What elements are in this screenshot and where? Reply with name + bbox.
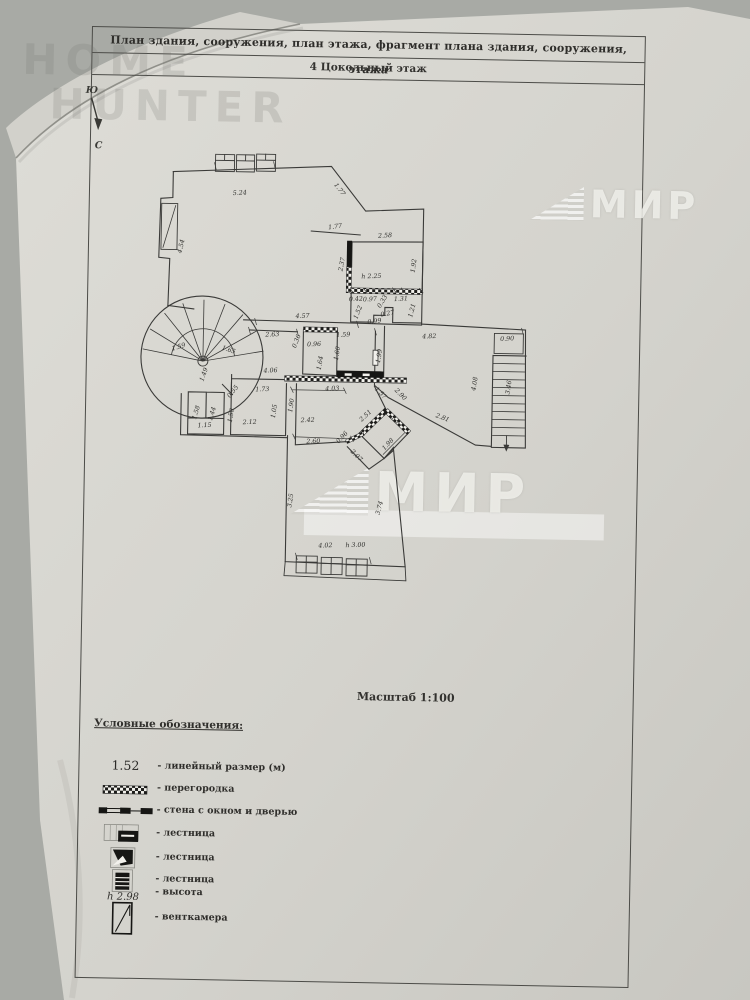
dimension-label: 1.05 <box>270 404 279 419</box>
legend-label: - стена с окном и дверью <box>157 804 298 818</box>
dimension-labels: 5.241.771.774.542.581.92h 2.252.370.420.… <box>167 179 517 553</box>
dimension-label: 2.42 <box>300 417 315 425</box>
dimension-label: 1.99 <box>375 349 384 364</box>
dimension-label: 0.42 <box>349 296 363 304</box>
partition-symbol-icon <box>102 784 148 795</box>
compass-north-label: С <box>95 140 119 151</box>
dimension-label: 1.49 <box>199 367 210 383</box>
window-symbols-bottom <box>296 556 367 576</box>
dimension-label: 3.46 <box>504 380 513 395</box>
dimension-label: 3.25 <box>286 493 295 508</box>
walls <box>137 152 531 583</box>
dimension-label: 4.02 <box>317 542 332 550</box>
dimension-label: 1.52 <box>353 305 365 321</box>
legend-row-vent-chamber: - венткамера <box>90 901 390 932</box>
partition-walls <box>283 240 423 445</box>
dimension-label: 2.60 <box>305 438 320 446</box>
photographed-floorplan-page: План здания, сооружения, план этажа, фра… <box>0 0 750 1000</box>
dimension-label: 1.90 <box>287 398 296 413</box>
legend-label: - лестница <box>156 827 215 839</box>
legend-label: - линейный размер (м) <box>157 760 285 773</box>
floor-plan-drawing: 5.241.771.774.542.581.92h 2.252.370.420.… <box>133 141 546 588</box>
legend-label: - перегородка <box>157 782 235 794</box>
dimension-label: 1.21 <box>407 303 417 318</box>
dimension-label: h 3.00 <box>345 542 365 550</box>
dimension-label: 1.77 <box>332 182 346 197</box>
dimension-label: 0.97 <box>363 296 377 304</box>
dimension-label: 1.73 <box>255 386 269 393</box>
dimension-label: 0.55 <box>226 384 240 399</box>
dimension-label: 2.37 <box>337 257 347 273</box>
dimension-label: 0.99 <box>367 317 382 326</box>
dimension-label: 0.90 <box>500 335 514 343</box>
dimension-label: 3.74 <box>375 500 385 515</box>
dimension-label: 4.06 <box>263 367 278 375</box>
dimension-label: 4.03 <box>324 385 339 393</box>
legend-title: Условные обозначения: <box>94 717 394 734</box>
dimension-label: 4.57 <box>295 313 310 321</box>
legend-label: - лестница <box>156 851 215 863</box>
linear-dimension-sample: 1.52 <box>99 757 151 773</box>
document-frame: План здания, сооружения, план этажа, фра… <box>75 26 646 988</box>
stairs-symbol-icon <box>107 845 141 870</box>
dimension-label: 1.31 <box>394 295 408 303</box>
dimension-label: 4.08 <box>470 376 479 392</box>
spiral-stairs <box>143 299 264 362</box>
dimension-label: 2.81 <box>434 412 451 424</box>
dimension-label: 5.24 <box>233 189 247 197</box>
legend-label: - высота <box>155 886 203 898</box>
wall-window-door-symbol-icon <box>99 804 155 817</box>
dimension-label: 1.50 <box>227 408 236 423</box>
dimension-label: 1.60 <box>333 346 342 361</box>
dimension-label: 4.82 <box>421 333 436 341</box>
compass-south-label: Ю <box>86 85 120 97</box>
dimension-label: 2.90 <box>392 386 408 402</box>
dimension-label: 1.59 <box>336 331 350 338</box>
dimension-label: 1.77 <box>328 223 343 232</box>
dimension-label: h 2.25 <box>361 273 381 281</box>
compass-arrow-icon <box>85 96 110 136</box>
stairs-symbol-icon <box>102 821 146 846</box>
legend-label: - венткамера <box>155 911 228 923</box>
dimension-label: 4.54 <box>176 239 186 255</box>
dimension-label: 1.15 <box>197 422 211 429</box>
dimension-label: 1.44 <box>207 406 218 421</box>
dimension-label: 0.96 <box>307 341 321 348</box>
north-arrow-compass: Ю С <box>85 85 120 152</box>
vent-chamber-symbol-icon <box>108 901 137 936</box>
legend: Условные обозначения: 1.52 - линейный ра… <box>94 717 394 734</box>
scale-label: Масштаб 1:100 <box>336 690 476 706</box>
dimension-label: 2.63 <box>264 331 279 339</box>
dimension-label: 2.12 <box>242 419 257 427</box>
dimension-label: 2.58 <box>377 232 392 240</box>
dimension-label: 1.65 <box>221 345 237 356</box>
dimension-ticks <box>207 160 526 567</box>
dimension-label: 1.92 <box>410 258 419 273</box>
dimension-label: 0.36 <box>291 333 303 349</box>
dimension-label: 1.64 <box>316 356 325 371</box>
